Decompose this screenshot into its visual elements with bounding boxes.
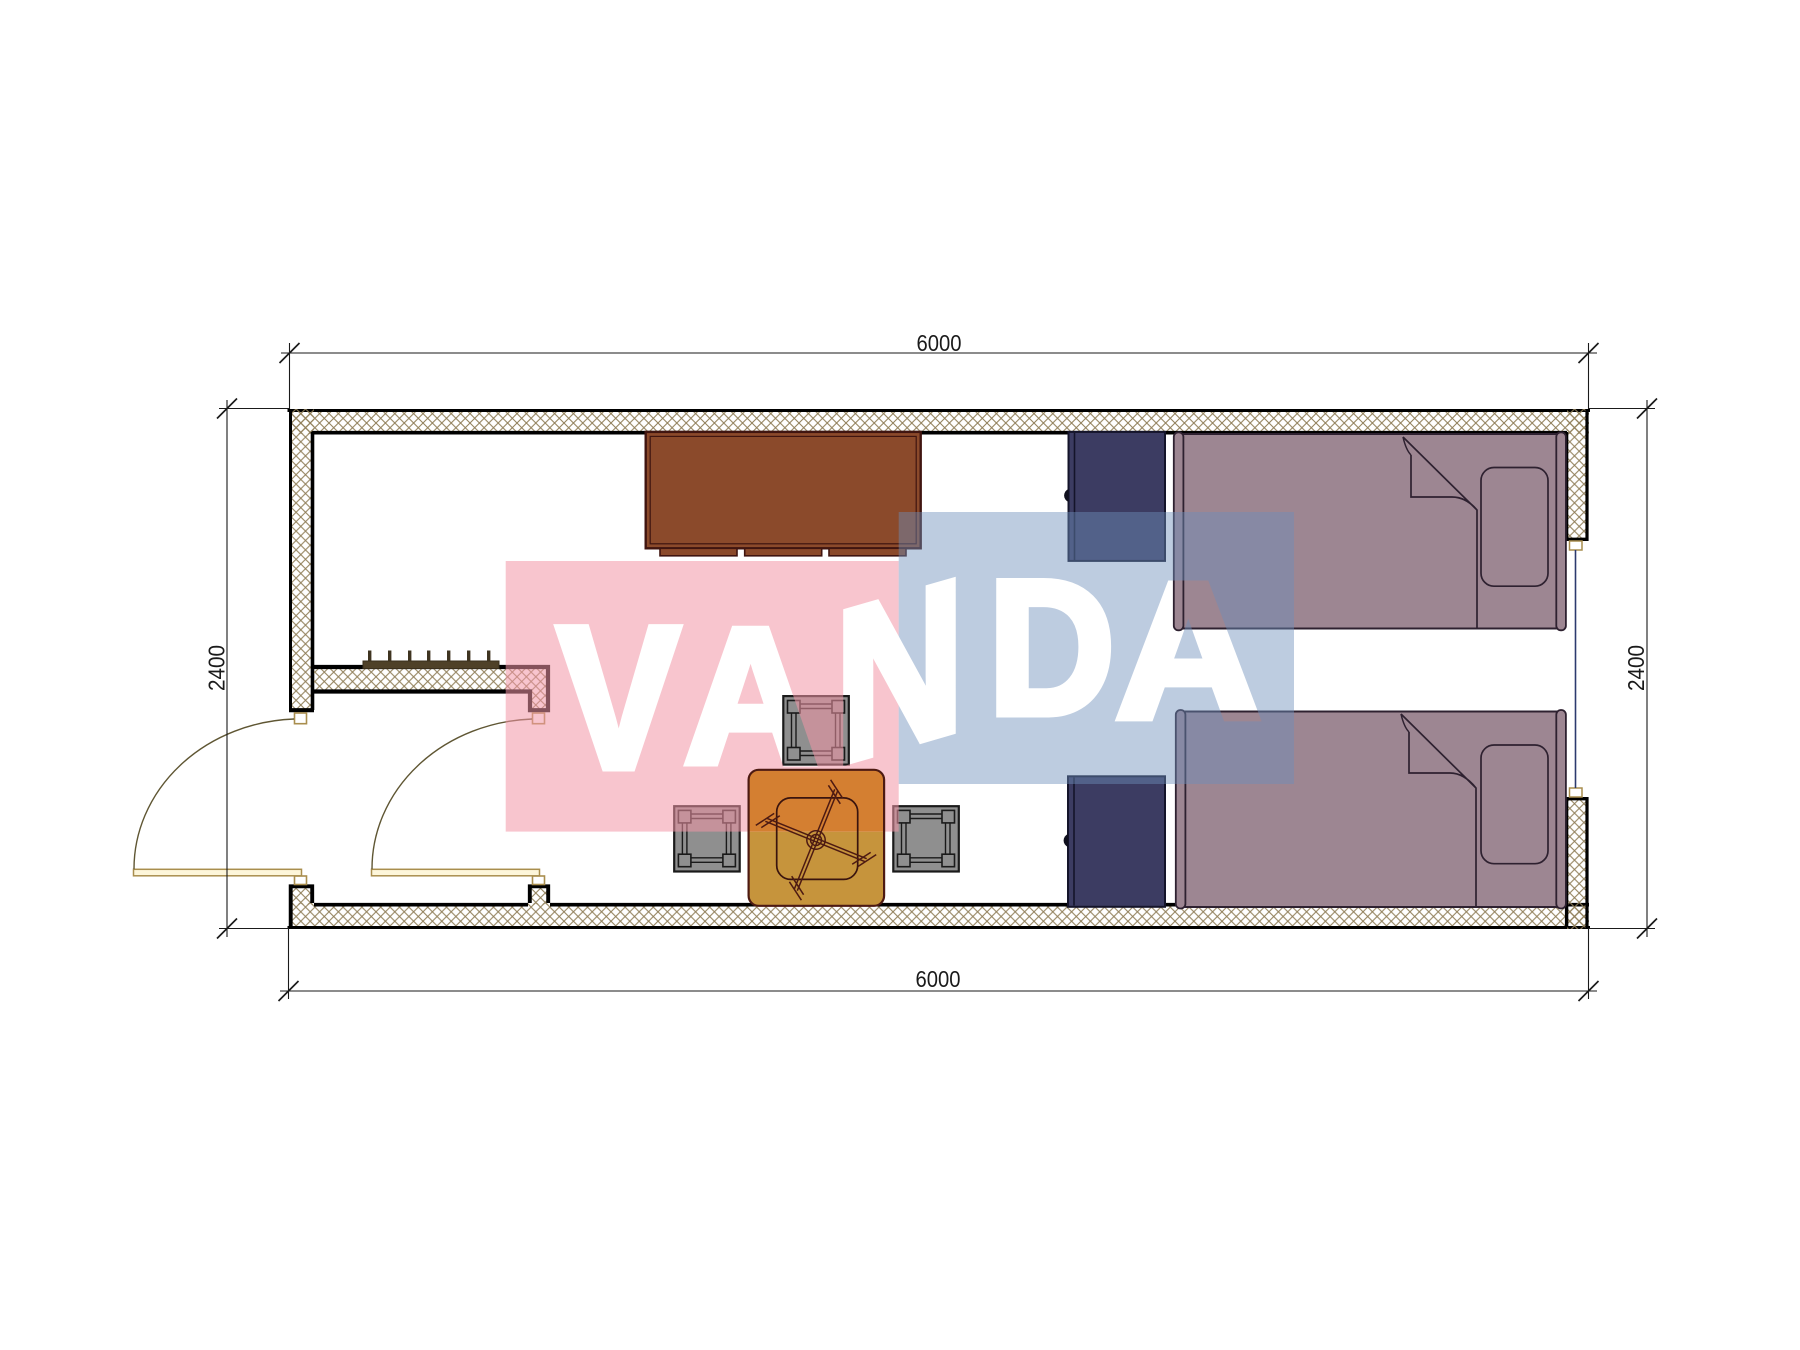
svg-text:6000: 6000: [916, 966, 961, 992]
svg-text:6000: 6000: [917, 330, 962, 356]
svg-text:2400: 2400: [1623, 645, 1649, 691]
svg-text:2400: 2400: [204, 645, 230, 691]
